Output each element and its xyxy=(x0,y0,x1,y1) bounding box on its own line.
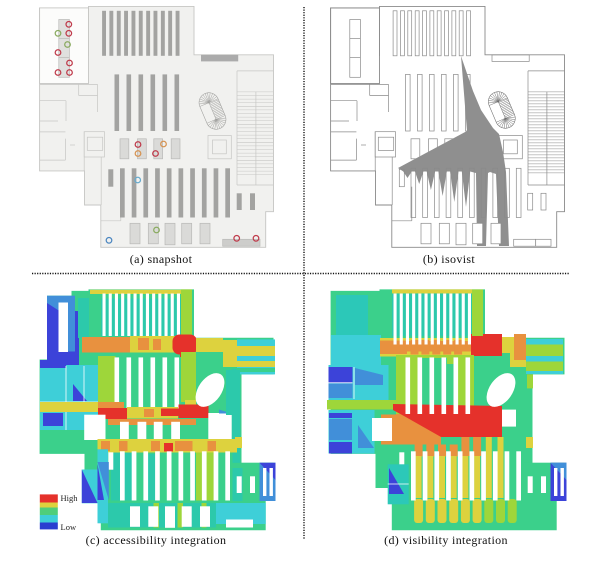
svg-text:(d) visibility integration: (d) visibility integration xyxy=(384,533,508,547)
svg-text:High: High xyxy=(61,493,79,503)
svg-text:(a) snapshot: (a) snapshot xyxy=(130,252,193,266)
svg-text:Low: Low xyxy=(61,522,77,532)
svg-text:(b) isovist: (b) isovist xyxy=(423,252,475,266)
svg-text:(c) accessibility integration: (c) accessibility integration xyxy=(86,533,227,547)
